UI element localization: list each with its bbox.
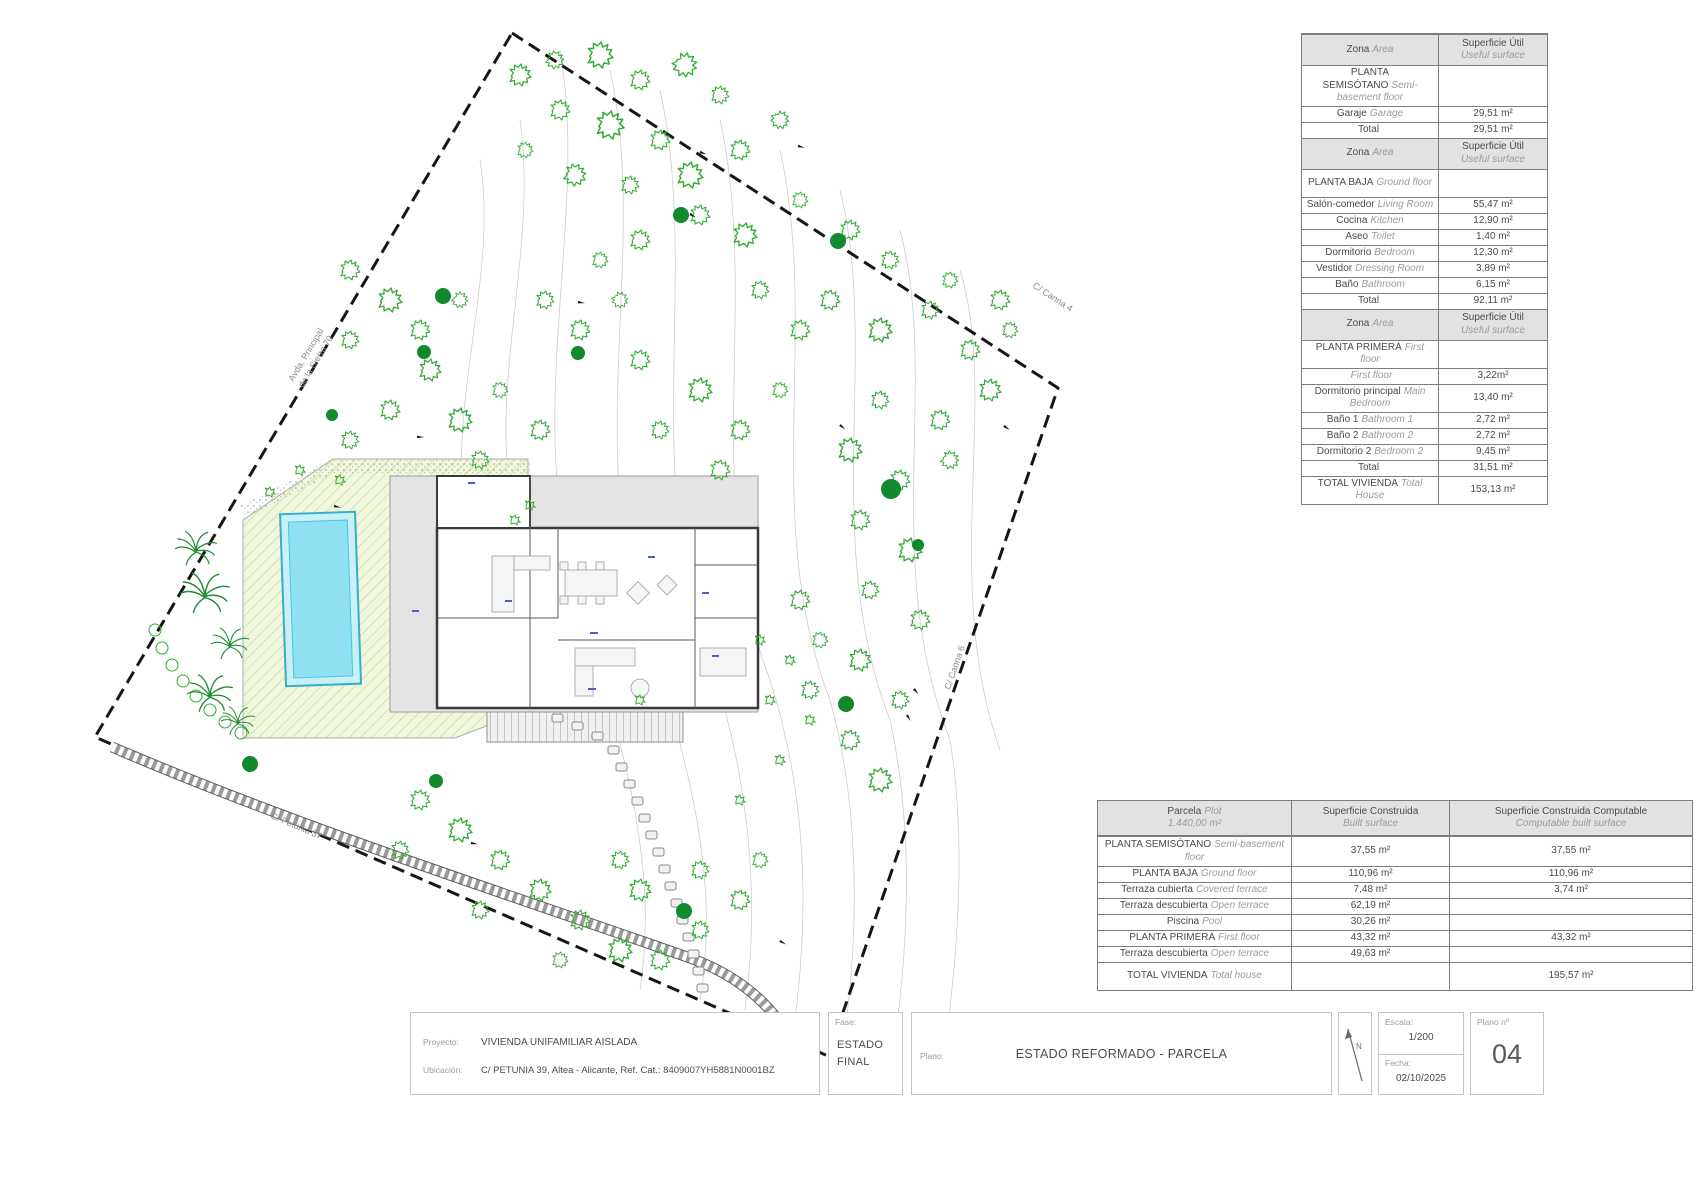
project-label: Proyecto:: [423, 1037, 481, 1047]
tree-cluster-center: [593, 230, 810, 480]
sheet-title-box: Plano: ESTADO REFORMADO - PARCELA: [911, 1012, 1332, 1095]
zone-label-en: Dressing Room: [1355, 263, 1424, 274]
built-value: 110,96 m²: [1294, 868, 1447, 881]
zone-label-en: Bathroom 1: [1362, 414, 1414, 425]
swimming-pool: [280, 512, 361, 687]
zone-label-en: Kitchen: [1370, 215, 1403, 226]
zone-label-es: Dormitorio principal: [1315, 386, 1401, 397]
zone-label-es: Baño 1: [1327, 414, 1359, 425]
surface-value: 3,89 m²: [1441, 263, 1545, 276]
table-row: TOTAL VIVIENDATotal House 153,13 m²: [1302, 476, 1547, 504]
zone-label-es: Dormitorio: [1325, 247, 1371, 258]
table-row: Total 92,11 m²: [1302, 293, 1547, 309]
zone-label-es: Vestidor: [1316, 263, 1352, 274]
computable-value: 37,55 m²: [1452, 845, 1690, 858]
zone-label-es: PLANTA SEMISÓTANO: [1322, 67, 1389, 91]
table-row: PLANTA BAJAGround floor 110,96 m² 110,96…: [1098, 866, 1692, 882]
table-row: BañoBathroom 6,15 m²: [1302, 277, 1547, 293]
zone-label-en: Garage: [1370, 108, 1403, 119]
zone-label-es: Baño 2: [1327, 430, 1359, 441]
built-value: 62,19 m²: [1294, 900, 1447, 913]
surface-value: 13,40 m²: [1441, 392, 1545, 405]
zone-label-en: Bathroom: [1362, 279, 1405, 290]
surface-value: 29,51 m²: [1441, 124, 1545, 137]
scale-label: Escala:: [1385, 1017, 1413, 1027]
table-row: PLANTA SEMISÓTANOSemi-basement floor 37,…: [1098, 836, 1692, 866]
sheet-title: ESTADO REFORMADO - PARCELA: [912, 1047, 1331, 1061]
built-table-header: ParcelaPlot 1.440,00 m² Superficie Const…: [1098, 801, 1692, 836]
built-col-label: Superficie Construida: [1294, 806, 1447, 819]
zone-label-en: Bathroom 2: [1362, 430, 1414, 441]
phase-line1: ESTADO: [837, 1037, 902, 1054]
table-row: Baño 1Bathroom 1 2,72 m²: [1302, 412, 1547, 428]
table-row: First floor 3,22m²: [1302, 368, 1547, 384]
site-plan-sheet: { "plan": { "labels": { "calle_line1": "…: [0, 0, 1697, 1200]
computable-value: 195,57 m²: [1452, 970, 1690, 983]
zone-label-es: Zona: [1347, 44, 1370, 55]
surface-value: 2,72 m²: [1441, 430, 1545, 443]
zone-label-es: PLANTA BAJA: [1308, 177, 1373, 188]
table-row: TOTAL VIVIENDATotal house 195,57 m²: [1098, 962, 1692, 990]
zone-label-es: Dormitorio 2: [1317, 446, 1371, 457]
zone-label-es: Garaje: [1337, 108, 1367, 119]
zone-label-en: Area: [1372, 44, 1393, 55]
zone-label-es: Total: [1358, 295, 1379, 306]
table-row: PLANTA PRIMERAFirst floor 43,32 m² 43,32…: [1098, 930, 1692, 946]
table-row: ZonaArea Superficie Útil Useful surface: [1302, 34, 1547, 65]
surface-value: 3,22m²: [1441, 370, 1545, 383]
location-label: Ubicación:: [423, 1065, 481, 1075]
zone-label-en: Toilet: [1371, 231, 1395, 242]
zone-label-es: Total: [1358, 462, 1379, 473]
surface-value: 153,13 m²: [1441, 484, 1545, 497]
surface-value: 29,51 m²: [1441, 108, 1545, 121]
zone-label-es: Salón-comedor: [1307, 199, 1375, 210]
built-surface-table: ParcelaPlot 1.440,00 m² Superficie Const…: [1097, 800, 1693, 991]
computable-value: 3,74 m²: [1452, 884, 1690, 897]
phase-box: Fase: ESTADO FINAL: [828, 1012, 903, 1095]
built-value: 7,48 m²: [1294, 884, 1447, 897]
zone-label-en: Living Room: [1378, 199, 1434, 210]
north-arrow-box: N: [1338, 1012, 1372, 1095]
surface-value: 9,45 m²: [1441, 446, 1545, 459]
table-row: Total 31,51 m²: [1302, 460, 1547, 476]
surface-value: Superficie Útil: [1441, 141, 1545, 154]
zone-label-en: Ground floor: [1376, 177, 1432, 188]
surface-value: 12,30 m²: [1441, 247, 1545, 260]
location-value: C/ PETUNIA 39, Altea - Alicante, Ref. Ca…: [481, 1065, 775, 1076]
zone-label-es: PLANTA PRIMERA: [1316, 342, 1402, 353]
computable-col-label: Superficie Construida Computable: [1452, 806, 1690, 819]
tree-cluster-left: [341, 260, 631, 469]
sheet-number-label: Plano nº: [1477, 1017, 1509, 1027]
table-row: ZonaArea Superficie Útil Useful surface: [1302, 309, 1547, 340]
table-row: Terraza descubiertaOpen terrace 49,63 m²: [1098, 946, 1692, 962]
table-row: PiscinaPool 30,26 m²: [1098, 914, 1692, 930]
built-value: 37,55 m²: [1294, 845, 1447, 858]
table-row: Total 29,51 m²: [1302, 122, 1547, 138]
built-table-body: PLANTA SEMISÓTANOSemi-basement floor 37,…: [1098, 836, 1692, 990]
scale-value: 1/200: [1379, 1032, 1463, 1043]
table-row: CocinaKitchen 12,90 m²: [1302, 213, 1547, 229]
zone-label-en: Area: [1372, 318, 1393, 329]
table-row: VestidorDressing Room 3,89 m²: [1302, 261, 1547, 277]
table-row: ZonaArea Superficie Útil Useful surface: [1302, 138, 1547, 169]
surface-value: 12,90 m²: [1441, 215, 1545, 228]
table-row: PLANTA SEMISÓTANOSemi-basement floor: [1302, 65, 1547, 106]
north-arrow-icon: N: [1339, 1013, 1371, 1094]
surface-value: 1,40 m²: [1441, 231, 1545, 244]
surface-value-en: Useful surface: [1441, 50, 1545, 63]
table-row: Terraza cubiertaCovered terrace 7,48 m² …: [1098, 882, 1692, 898]
built-value: 43,32 m²: [1294, 932, 1447, 945]
zone-label-es: Aseo: [1345, 231, 1368, 242]
street-label-canna4: C/ Canna 4: [1031, 280, 1075, 313]
surface-value-en: Useful surface: [1441, 325, 1545, 338]
built-value: 49,63 m²: [1294, 948, 1447, 961]
sheet-number: 04: [1471, 1039, 1543, 1070]
table-row: GarajeGarage 29,51 m²: [1302, 106, 1547, 122]
zone-label-en: Bedroom 2: [1374, 446, 1423, 457]
surface-value: 92,11 m²: [1441, 295, 1545, 308]
surface-value: 31,51 m²: [1441, 462, 1545, 475]
table-row: Dormitorio 2Bedroom 2 9,45 m²: [1302, 444, 1547, 460]
table-row: PLANTA PRIMERAFirst floor: [1302, 340, 1547, 368]
tree-cluster-right: [791, 272, 1018, 792]
computable-value: 110,96 m²: [1452, 868, 1690, 881]
zone-label-en: First floor: [1351, 370, 1393, 381]
surface-value: Superficie Útil: [1441, 312, 1545, 325]
date-value: 02/10/2025: [1379, 1073, 1463, 1084]
table-row: Dormitorio principalMain Bedroom 13,40 m…: [1302, 384, 1547, 412]
table-row: Terraza descubiertaOpen terrace 62,19 m²: [1098, 898, 1692, 914]
house-floor-plan: [390, 476, 758, 742]
surface-value: Superficie Útil: [1441, 38, 1545, 51]
zone-label-es: Total: [1358, 124, 1379, 135]
sheet-number-box: Plano nº 04: [1470, 1012, 1544, 1095]
zone-label-es: Zona: [1347, 147, 1370, 158]
table-row: PLANTA BAJAGround floor: [1302, 169, 1547, 197]
svg-text:N: N: [1356, 1042, 1362, 1051]
zone-label-es: Baño: [1335, 279, 1358, 290]
table-row: DormitorioBedroom 12,30 m²: [1302, 245, 1547, 261]
parcela-label: Parcela: [1167, 806, 1201, 817]
zone-label-es: Zona: [1347, 318, 1370, 329]
surface-value: 55,47 m²: [1441, 199, 1545, 212]
zone-label-es: Cocina: [1336, 215, 1367, 226]
table-row: AseoToilet 1,40 m²: [1302, 229, 1547, 245]
hedge-row: [149, 624, 247, 739]
phase-label: Fase:: [835, 1017, 902, 1027]
scale-date-box: Escala: 1/200 Fecha: 02/10/2025: [1378, 1012, 1464, 1095]
computable-value: 43,32 m²: [1452, 932, 1690, 945]
phase-line2: FINAL: [837, 1054, 902, 1071]
driveway-band: [112, 747, 792, 1042]
built-value: 30,26 m²: [1294, 916, 1447, 929]
surface-value-en: Useful surface: [1441, 154, 1545, 167]
project-name: VIVIENDA UNIFAMILIAR AISLADA: [481, 1037, 637, 1048]
table-row: Salón-comedorLiving Room 55,47 m²: [1302, 197, 1547, 213]
project-info-box: Proyecto: VIVIENDA UNIFAMILIAR AISLADA U…: [410, 1012, 820, 1095]
zone-label-es: TOTAL VIVIENDA: [1318, 478, 1398, 489]
date-label: Fecha:: [1385, 1058, 1411, 1068]
zone-label-en: Bedroom: [1374, 247, 1415, 258]
surface-value: 6,15 m²: [1441, 279, 1545, 292]
surface-value: 2,72 m²: [1441, 414, 1545, 427]
useful-surface-table: ZonaArea Superficie Útil Useful surface …: [1301, 33, 1548, 505]
table-row: Baño 2Bathroom 2 2,72 m²: [1302, 428, 1547, 444]
parcela-area: 1.440,00 m²: [1101, 818, 1288, 831]
zone-label-en: Area: [1372, 147, 1393, 158]
